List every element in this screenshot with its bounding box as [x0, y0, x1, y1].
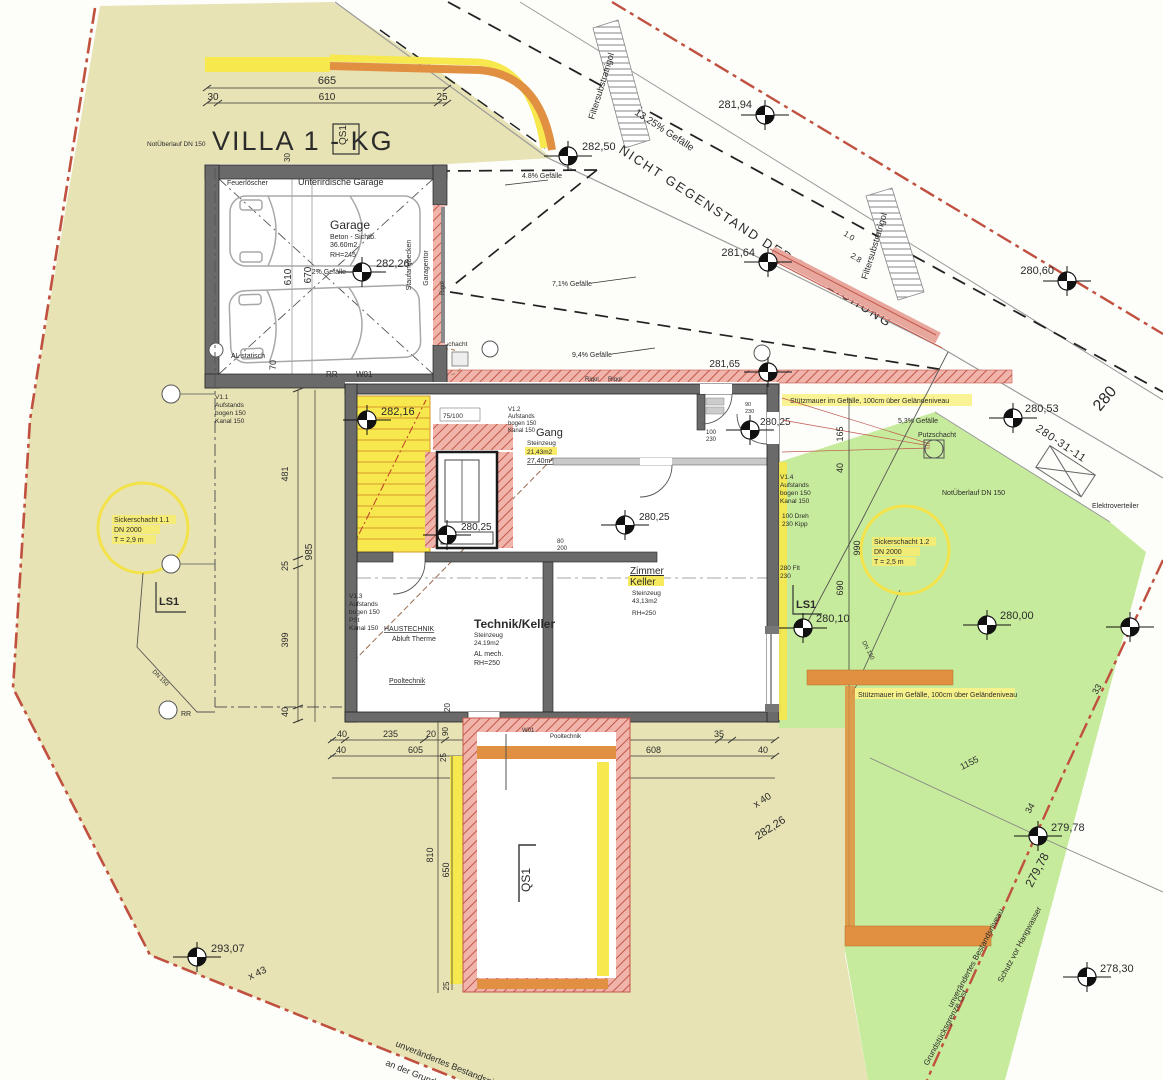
rr-label-garage: RR	[326, 370, 338, 379]
room-gang-area2: 27,40m²	[527, 458, 553, 465]
dim-bot1-235: 235	[383, 729, 398, 739]
floor-plan-page: NICHT GEGENSTAND DER EINREICHUNG 13,25% …	[0, 0, 1163, 1080]
dim-right-990: 990	[852, 540, 862, 555]
valve-v11-b: Aufstands	[215, 402, 245, 409]
w01-pool-label: W01	[522, 728, 535, 734]
door-tag-hall-b: 200	[557, 546, 568, 552]
shaft-circle-court	[482, 341, 498, 357]
elev-court: 281,65	[709, 359, 740, 370]
valve-v12-d: Kanal 150	[508, 428, 536, 434]
dim-left-985: 985	[304, 543, 315, 560]
dim-left-25: 25	[280, 561, 290, 571]
valve-v12-c: bogen 150	[508, 421, 537, 427]
elev-entry: 280,25	[760, 417, 791, 428]
dim-garage-70: 70	[268, 360, 278, 370]
dim-pool-25: 25	[442, 981, 451, 990]
valve-v11-a: V1.1	[215, 394, 229, 401]
room-gang-material: Steinzeug	[527, 440, 556, 447]
dim-wall-90: 90	[441, 727, 450, 736]
door-tag-entry-a: 90	[745, 402, 751, 408]
elev-ramp: 282,50	[582, 141, 616, 153]
notueberlauf-left: NotÜberlauf DN 150	[147, 140, 206, 148]
garage-room-label: Unterirdische Garage	[298, 177, 384, 187]
putzschacht-label-2: Putzschacht	[918, 432, 956, 439]
dim-left-399: 399	[280, 632, 290, 647]
elev-road2: 281,64	[721, 247, 755, 259]
dim-bot1-40: 40	[337, 729, 347, 739]
valve-v13-c: bogen 150	[349, 609, 380, 616]
elev-lawn1: 280,53	[1025, 403, 1059, 415]
dim-left-481: 481	[280, 466, 290, 481]
pool-structure: QS1 W01 Pooltechnik 810 650 25	[425, 718, 630, 993]
valve-v14-c: bogen 150	[780, 490, 811, 497]
retaining-bar-2	[845, 926, 991, 946]
door-tag-hall-a: 80	[557, 539, 564, 545]
valve-v12-a: V1.2	[508, 407, 521, 413]
pooltechnik-label: Pooltechnik	[389, 678, 426, 685]
room-gang-area1: 21,43m2	[527, 449, 553, 456]
retaining-bar-1	[807, 670, 953, 685]
valve-v14-g: 280 Flt	[780, 565, 800, 572]
elev-southwest: 293,07	[211, 943, 245, 955]
room-technik-name: Technik/Keller	[474, 617, 555, 631]
qs1-pool-label: QS1	[519, 868, 533, 892]
dim-right-165: 165	[835, 426, 845, 441]
pool-band-top	[477, 746, 616, 759]
haustechnik-label: HAUSTECHNIK	[384, 626, 435, 633]
dim-top-25: 25	[436, 92, 448, 103]
dim-right-40: 40	[835, 463, 845, 473]
sickerschacht-2-l3: T = 2,5 m	[874, 559, 904, 566]
valve-v11-c: bogen 150	[215, 410, 246, 417]
dim-left-40: 40	[280, 707, 290, 717]
dim-pool-650: 650	[441, 862, 451, 877]
page-title: VILLA 1 - KG	[212, 126, 394, 156]
w01-label-garage: W01	[356, 370, 373, 379]
road-mark-1: 1.0	[842, 229, 857, 243]
elev-lawn2: 280,10	[816, 613, 850, 625]
abluft-therme-label: Abluft Therme	[392, 636, 436, 643]
dim-wall-20: 20	[443, 703, 452, 712]
valve-v13-e: Kanal 150	[349, 625, 379, 632]
elev-garage: 282,26	[376, 258, 410, 270]
door-tag-gang-b: 230	[706, 437, 717, 443]
site-plan-drawing: NICHT GEGENSTAND DER EINREICHUNG 13,25% …	[0, 0, 1163, 1080]
slope-53-label: 5,3% Gefälle	[898, 418, 938, 425]
stuetzmauer-label-1: Stützmauer im Gefälle, 100cm über Geländ…	[790, 398, 949, 405]
dim-top-30: 30	[207, 92, 219, 103]
garage-name-label: Garage	[330, 218, 370, 232]
dim-bot2-605: 605	[408, 745, 423, 755]
lift-size-tag: 75/100	[443, 413, 463, 420]
dim-bot2-40r: 40	[758, 745, 768, 755]
garagentor-label: Garagentor	[423, 250, 430, 286]
sickerschacht-2-l1: Sickerschacht 1.2	[874, 539, 929, 546]
dim-top-610: 610	[319, 92, 336, 103]
room-zimmer-name2: Keller	[630, 577, 656, 588]
ls1-left-label: LS1	[159, 596, 179, 608]
al-statisch-label: AL statisch	[231, 353, 265, 360]
valve-v14-e: 100 Dreh	[782, 513, 809, 520]
elev-lawn3: 280,00	[1000, 610, 1034, 622]
pooltechnik-label-2: Pooltechnik	[550, 734, 582, 740]
slope-71-label: 7,1% Gefälle	[552, 281, 592, 288]
room-gang-name: Gang	[536, 427, 563, 439]
contour-280-label: 280	[1090, 383, 1120, 414]
room-zimmer-area: 43,13m2	[632, 598, 658, 605]
elektroverteiler-label: Elektroverteiler	[1092, 503, 1139, 510]
pool-band-bottom	[477, 979, 608, 989]
elev-slope: 279,78	[1051, 822, 1085, 834]
dim-bot1-20: 20	[426, 729, 436, 739]
elev-stair: 282,16	[381, 406, 415, 418]
room-zimmer-material: Steinzeug	[632, 590, 661, 597]
stuetzmauer-label-2: Stützmauer im Gefälle, 100cm über Geländ…	[858, 692, 1017, 699]
dim-top-665: 665	[318, 75, 336, 87]
garage-spec-2: 36.60m2	[330, 242, 357, 249]
fire-extinguisher-label: Feuerlöscher	[227, 180, 269, 187]
rigol-label-1: Rigol	[440, 281, 446, 295]
valve-v14-a: V1.4	[780, 474, 794, 481]
main-building: 75/100 Gang Steinzeug 21,43m2 27,40m² V1…	[343, 382, 781, 722]
slope-94-label: 9,4% Gefälle	[572, 352, 612, 359]
slope-48-label: 4.8% Gefälle	[522, 173, 562, 180]
garage-door-leaf	[441, 207, 445, 343]
valve-v13-b: Aufstands	[349, 601, 379, 608]
dim-garage-610: 610	[283, 268, 294, 285]
pool-yellow-right	[597, 762, 609, 976]
room-technik-al: AL mech.	[474, 651, 503, 658]
room-zimmer-rh: RH=250	[632, 610, 656, 617]
rr-label-left: RR	[181, 711, 191, 718]
dim-garage-670: 670	[303, 266, 314, 283]
notueberlauf-right: NotÜberlauf DN 150	[942, 489, 1005, 497]
valve-v14-f: 230 Kipp	[782, 521, 808, 528]
room-zimmer-name1: Zimmer	[630, 566, 665, 577]
retaining-bar-vertical	[845, 686, 855, 930]
room-technik-material: Steinzeug	[474, 632, 503, 639]
valve-v11-d: Kanal 150	[215, 418, 245, 425]
valve-v14-b: Aufstands	[780, 482, 810, 489]
valve-v13-d: PSt	[349, 617, 360, 624]
door-tag-gang-a: 100	[706, 430, 717, 436]
dim-pool-810: 810	[425, 847, 435, 862]
sickerschacht-2-l2: DN 2000	[874, 549, 902, 556]
ls1-right-label: LS1	[796, 599, 816, 611]
elev-east: 278,30	[1100, 963, 1134, 975]
valve-v13-a: V1.3	[349, 593, 363, 600]
garage-block: Unterirdische Garage Feuerlöscher Garage…	[205, 153, 447, 388]
elev-hall: 280,25	[461, 522, 492, 533]
qs1-section-label: QS1	[338, 125, 349, 145]
sickerschacht-1-l3: T = 2,9 m	[114, 537, 144, 544]
garage-spec-1: Beton - Sichtb.	[330, 234, 376, 241]
rigole-band	[445, 370, 1012, 383]
room-technik-rh: RH=250	[474, 660, 500, 667]
sickerschacht-1-l2: DN 2000	[114, 527, 142, 534]
sickerschacht-1-l1: Sickerschacht 1.1	[114, 517, 169, 524]
yellow-band-top	[205, 57, 330, 72]
garage-spec-3: RH=245	[330, 252, 356, 259]
elev-road1: 281,94	[718, 99, 752, 111]
elev-road3: 280,60	[1020, 265, 1054, 277]
valve-v14-d: Kanal 150	[780, 498, 810, 505]
dim-bot2-608: 608	[646, 745, 661, 755]
valve-v12-b: Aufstands	[508, 414, 535, 420]
elev-zimmer: 280,25	[639, 512, 670, 523]
road-mark-2: 2.8	[849, 251, 864, 265]
dim-bot1-35: 35	[714, 729, 724, 739]
dim-wall-25: 25	[439, 753, 448, 762]
dim-right-690: 690	[835, 580, 845, 595]
dim-bot2-40: 40	[336, 745, 346, 755]
valve-v14-h: 230	[780, 573, 791, 580]
room-technik-area: 24.19m2	[474, 640, 500, 647]
door-tag-entry-b: 230	[745, 409, 754, 415]
